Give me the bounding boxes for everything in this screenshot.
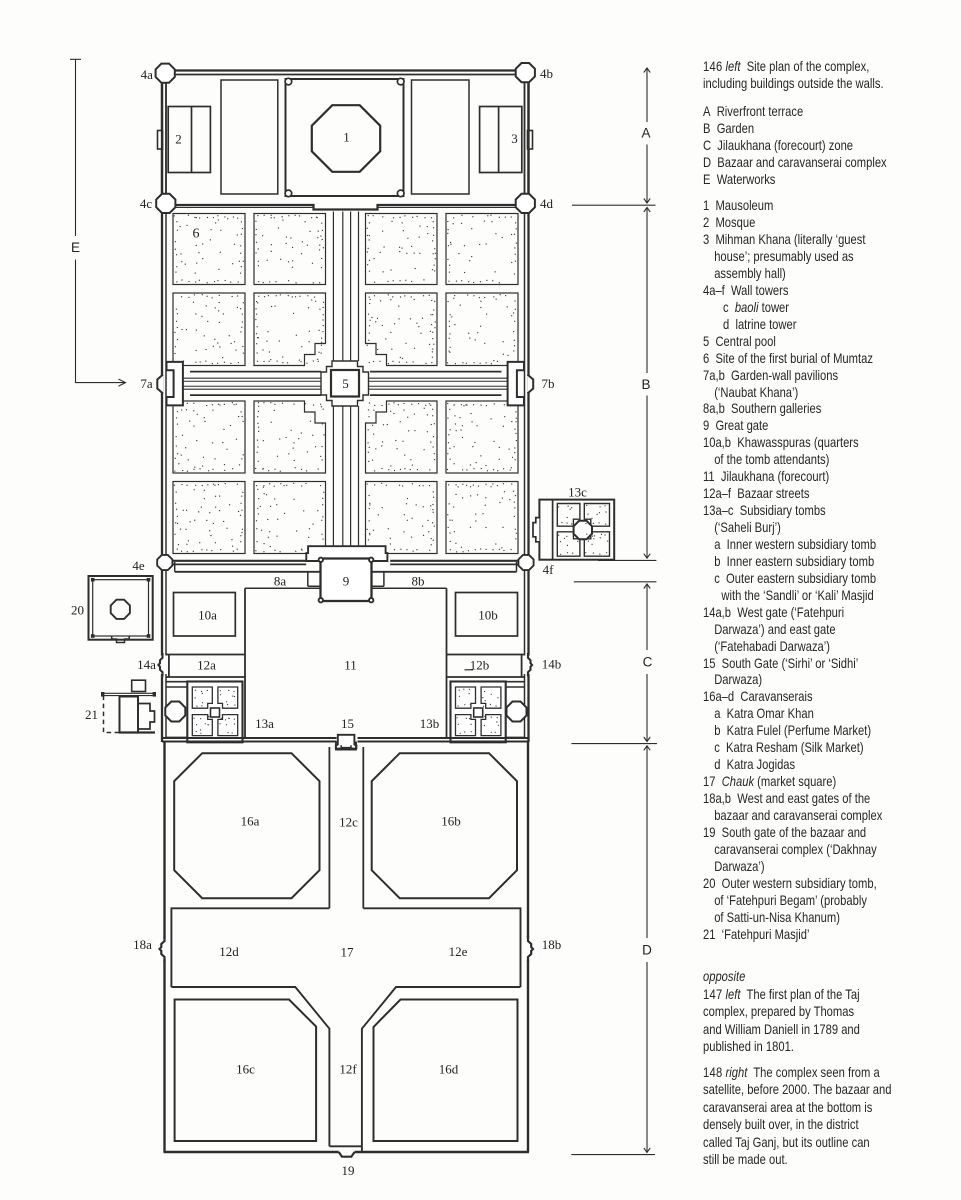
svg-text:7b: 7b bbox=[542, 376, 555, 391]
svg-text:18a: 18a bbox=[133, 937, 152, 952]
svg-text:18b: 18b bbox=[542, 937, 562, 952]
svg-text:3: 3 bbox=[511, 131, 518, 146]
svg-text:C: C bbox=[643, 655, 653, 670]
svg-text:16b: 16b bbox=[441, 813, 461, 828]
svg-text:4e: 4e bbox=[132, 558, 145, 573]
svg-text:20: 20 bbox=[71, 602, 84, 617]
svg-text:7a: 7a bbox=[140, 376, 153, 391]
svg-text:1: 1 bbox=[343, 129, 350, 144]
svg-text:19: 19 bbox=[342, 1163, 355, 1178]
svg-text:4d: 4d bbox=[540, 196, 554, 211]
svg-text:12c: 12c bbox=[339, 814, 358, 829]
svg-text:12e: 12e bbox=[449, 944, 468, 959]
svg-text:21: 21 bbox=[85, 707, 98, 722]
svg-text:13a: 13a bbox=[255, 716, 274, 731]
svg-text:14b: 14b bbox=[542, 656, 562, 671]
svg-text:2: 2 bbox=[175, 131, 182, 146]
svg-text:8a: 8a bbox=[274, 573, 287, 588]
svg-text:10a: 10a bbox=[198, 607, 217, 622]
svg-text:12b: 12b bbox=[470, 657, 490, 672]
svg-text:D: D bbox=[642, 943, 652, 958]
svg-text:16d: 16d bbox=[439, 1061, 459, 1076]
svg-text:12d: 12d bbox=[219, 944, 239, 959]
svg-text:8b: 8b bbox=[412, 573, 425, 588]
svg-text:E: E bbox=[71, 240, 80, 255]
svg-text:4b: 4b bbox=[540, 66, 553, 81]
svg-text:4a: 4a bbox=[141, 67, 154, 82]
svg-text:5: 5 bbox=[342, 376, 349, 391]
svg-text:12a: 12a bbox=[197, 657, 216, 672]
svg-text:13c: 13c bbox=[568, 484, 587, 499]
svg-text:16a: 16a bbox=[241, 813, 260, 828]
svg-text:14a: 14a bbox=[137, 657, 156, 672]
svg-text:A: A bbox=[641, 126, 650, 141]
svg-text:13b: 13b bbox=[420, 716, 440, 731]
svg-text:17: 17 bbox=[341, 944, 355, 959]
svg-text:6: 6 bbox=[193, 226, 200, 241]
svg-text:B: B bbox=[641, 377, 650, 392]
svg-text:4f: 4f bbox=[543, 562, 555, 577]
svg-text:9: 9 bbox=[343, 573, 350, 588]
svg-text:4c: 4c bbox=[140, 196, 153, 211]
svg-text:10b: 10b bbox=[478, 607, 498, 622]
svg-text:16c: 16c bbox=[236, 1061, 255, 1076]
svg-text:15: 15 bbox=[341, 716, 354, 731]
svg-text:12f: 12f bbox=[339, 1061, 357, 1076]
svg-text:11: 11 bbox=[344, 657, 357, 672]
